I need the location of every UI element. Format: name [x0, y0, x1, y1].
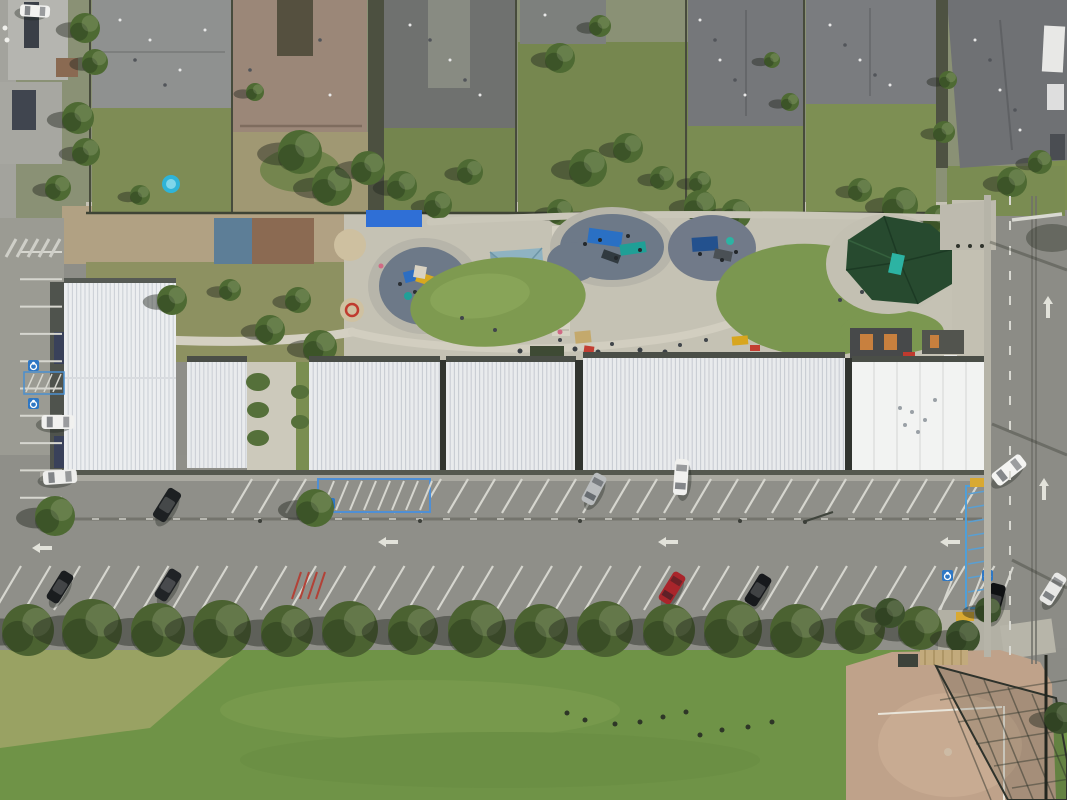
- backyard: [92, 108, 233, 212]
- pitchers-mound: [944, 748, 952, 756]
- courtyard-gap: [428, 0, 470, 88]
- classroom-building-3: [309, 362, 440, 472]
- circle: [726, 237, 734, 245]
- toddler-circle: [340, 298, 364, 322]
- play-structure: [692, 236, 719, 252]
- parked-truck: [1042, 25, 1065, 72]
- blue-tarp: [366, 210, 422, 227]
- rect: [575, 360, 583, 472]
- planter-boxes: [530, 346, 564, 356]
- shed-brick: [252, 218, 314, 264]
- orange-door: [860, 334, 873, 350]
- solar-panel: [12, 90, 36, 130]
- circle: [166, 179, 176, 189]
- hedge: [291, 385, 309, 399]
- hedge: [247, 430, 269, 446]
- house-gray-hip-roof: [92, 0, 232, 108]
- parked-car: [1050, 134, 1065, 160]
- backyard: [806, 104, 936, 214]
- aerial-photo-school-campus: [0, 0, 1067, 800]
- mow-streak: [240, 732, 760, 788]
- eave-shadow: [64, 470, 989, 475]
- picnic-table: [574, 330, 591, 344]
- courtyard-gap: [277, 0, 313, 56]
- rect: [446, 356, 576, 363]
- handicap-symbol: [28, 360, 39, 371]
- sidewalk: [984, 195, 991, 657]
- red-object: [750, 345, 760, 351]
- rect: [309, 356, 440, 363]
- orange-door: [930, 335, 939, 348]
- curb-ramp: [970, 478, 986, 487]
- sand-circle: [334, 229, 366, 261]
- yellow-cart: [732, 335, 749, 345]
- play-tower: [413, 265, 427, 279]
- circle: [404, 292, 412, 300]
- storage-building: [922, 330, 964, 354]
- shed-blue: [214, 218, 252, 264]
- orange-door: [884, 334, 897, 350]
- mow-streak: [220, 680, 620, 740]
- rect: [440, 360, 447, 472]
- hedge: [247, 402, 269, 418]
- hedge: [246, 373, 270, 391]
- parked-car: [1047, 84, 1064, 110]
- handicap-symbol: [942, 570, 953, 581]
- classroom-building-2: [187, 362, 247, 468]
- aerial-scene: [0, 0, 1067, 800]
- rect: [845, 358, 852, 474]
- rect: [852, 356, 989, 363]
- utility-vehicle: [898, 654, 918, 667]
- hedge: [291, 415, 309, 429]
- storage-building: [850, 328, 912, 358]
- handicap-symbol: [28, 398, 39, 409]
- classroom-building-5: [583, 358, 845, 472]
- classroom-building-4: [446, 362, 576, 472]
